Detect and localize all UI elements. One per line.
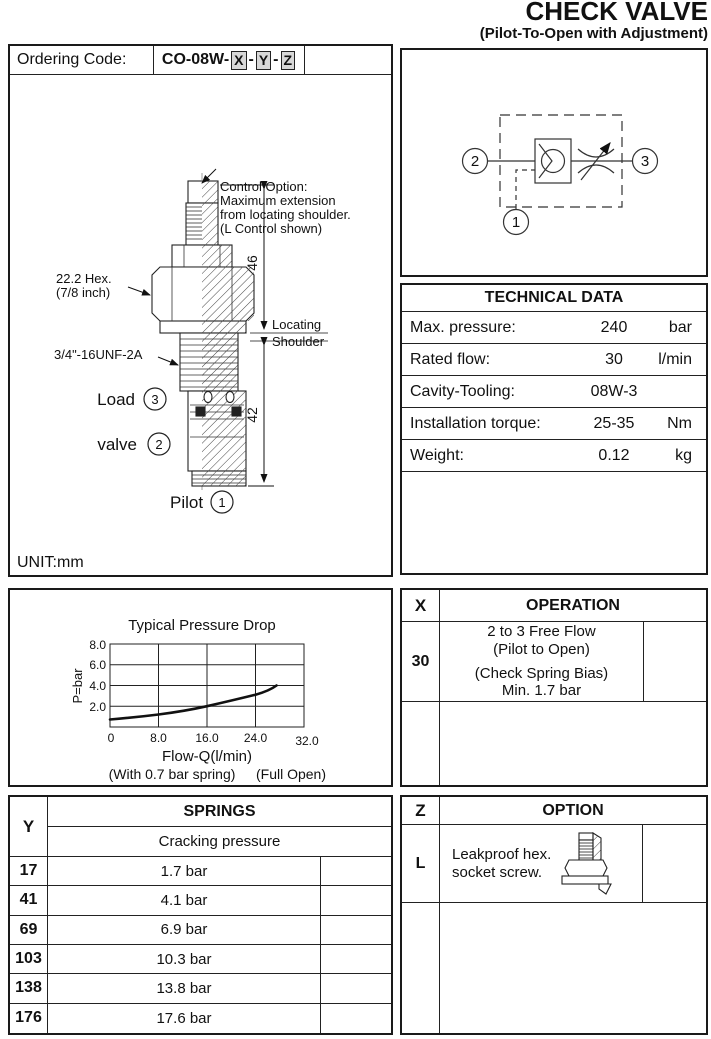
spring-value: 1.7 bar [48, 857, 321, 886]
dim-46-label: 46 [244, 255, 260, 271]
spring-value: 10.3 bar [48, 945, 321, 974]
xtick-32: 32.0 [295, 734, 319, 748]
chart-ylabel: P=bar [70, 668, 85, 704]
springs-panel: Y SPRINGS Cracking pressure 17 1.7 bar 4… [8, 795, 393, 1035]
dim-42-label: 42 [244, 407, 260, 423]
spring-value: 13.8 bar [48, 974, 321, 1003]
control-note-line1: Control Option: [220, 179, 307, 194]
leakproof-screw-icon [559, 832, 615, 896]
tech-value: 0.12 [574, 447, 654, 465]
xtick-16: 16.0 [195, 731, 219, 745]
option-code: L [402, 825, 440, 903]
tech-label: Rated flow: [402, 351, 574, 369]
spring-empty [321, 916, 391, 945]
hex-leader-arrow [128, 287, 150, 295]
operation-code: 30 [402, 622, 440, 702]
ordering-code-z: Z [281, 51, 296, 70]
spring-empty [321, 886, 391, 915]
spring-value: 17.6 bar [48, 1004, 321, 1033]
option-line1: Leakproof hex. [452, 846, 551, 864]
tech-unit: kg [654, 447, 706, 465]
ordering-code-value: CO-08W-X-Y-Z [154, 46, 305, 74]
check-ball [542, 150, 565, 173]
throttle-arc-top [578, 149, 614, 157]
operation-line1: 2 to 3 Free Flow [440, 623, 643, 641]
option-line2: socket screw. [452, 864, 551, 882]
option-title: OPTION [440, 797, 706, 825]
port-valve-number: 2 [155, 437, 162, 452]
technical-data-panel: TECHNICAL DATA Max. pressure: 240 bar Ra… [400, 283, 708, 575]
thread-leader-arrow [158, 357, 178, 365]
o-ring-left [196, 407, 205, 416]
chart-note-spring: (With 0.7 bar spring) [109, 766, 236, 782]
operation-line4: Min. 1.7 bar [440, 682, 643, 700]
unit-note: UNIT:mm [17, 554, 84, 572]
tech-label: Max. pressure: [402, 319, 574, 337]
cross-hole-right [226, 392, 234, 403]
ordering-code-y: Y [256, 51, 271, 70]
page-title: CHECK VALVE [526, 0, 709, 27]
operation-description: 2 to 3 Free Flow (Pilot to Open) (Check … [440, 622, 644, 702]
spring-empty [321, 974, 391, 1003]
port-load-number: 3 [151, 392, 158, 407]
spring-value: 4.1 bar [48, 886, 321, 915]
datasheet-page: CHECK VALVE (Pilot-To-Open with Adjustme… [0, 0, 711, 1039]
port-pilot-number: 1 [218, 495, 225, 510]
spring-code: 103 [10, 945, 48, 974]
pilot-line [516, 170, 535, 209]
pressure-drop-chart: Typical Pressure Drop 8.0 6.0 4.0 2.0 0 … [10, 590, 391, 785]
operation-panel: X OPERATION 30 2 to 3 Free Flow (Pilot t… [400, 588, 708, 787]
control-note-line4: (L Control shown) [220, 221, 322, 236]
spring-code: 17 [10, 857, 48, 886]
operation-title: OPERATION [440, 590, 706, 622]
spring-empty [321, 1004, 391, 1033]
tech-value: 30 [574, 351, 654, 369]
operation-line2: (Pilot to Open) [440, 641, 643, 659]
ytick-8: 8.0 [89, 638, 106, 652]
tech-label: Weight: [402, 447, 574, 465]
chart-xlabel: Flow-Q(l/min) [162, 748, 252, 765]
xtick-0: 0 [108, 731, 115, 745]
xtick-24: 24.0 [244, 731, 268, 745]
throttle-arc-bottom [578, 165, 614, 173]
ordering-code-prefix: CO-08W- [162, 51, 229, 69]
springs-title: SPRINGS [48, 797, 391, 827]
control-note-line2: Maximum extension [220, 193, 336, 208]
ordering-code-row: Ordering Code: CO-08W-X-Y-Z [10, 46, 391, 75]
spring-value: 6.9 bar [48, 916, 321, 945]
operation-line3: (Check Spring Bias) [440, 665, 643, 683]
ordering-sep1: - [249, 51, 254, 69]
tech-value: 08W-3 [574, 383, 654, 401]
spring-code: 41 [10, 886, 48, 915]
pressure-drop-curve [110, 686, 277, 720]
chart-note-fullopen: (Full Open) [256, 766, 326, 782]
table-row: Weight: 0.12 kg [402, 440, 706, 472]
technical-data-title: TECHNICAL DATA [402, 285, 706, 312]
tech-value: 25-35 [574, 415, 654, 433]
valve-cross-section-drawing: Control Option: Maximum extension from l… [10, 75, 391, 573]
tech-value: 240 [574, 319, 654, 337]
port-pilot-label: Pilot [170, 493, 203, 512]
page-subtitle: (Pilot-To-Open with Adjustment) [480, 25, 708, 42]
xtick-8: 8.0 [150, 731, 167, 745]
ordering-code-label: Ordering Code: [10, 46, 154, 74]
table-row: Cavity-Tooling: 08W-3 [402, 376, 706, 408]
springs-col-header: Y [10, 797, 48, 857]
ytick-4: 4.0 [89, 679, 106, 693]
pressure-drop-chart-panel: Typical Pressure Drop 8.0 6.0 4.0 2.0 0 … [8, 588, 393, 787]
option-panel: Z OPTION L Leakproof hex. socket screw. [400, 795, 708, 1035]
spring-code: 176 [10, 1004, 48, 1033]
cross-hole-left [204, 392, 212, 403]
port-load-label: Load [97, 390, 135, 409]
ordering-sep2: - [273, 51, 278, 69]
o-ring-right [232, 407, 241, 416]
operation-col-header: X [402, 590, 440, 622]
spring-empty [321, 945, 391, 974]
spring-code: 69 [10, 916, 48, 945]
tech-unit: Nm [654, 415, 706, 433]
tech-label: Installation torque: [402, 415, 574, 433]
ytick-6: 6.0 [89, 658, 106, 672]
drawing-panel: Ordering Code: CO-08W-X-Y-Z [8, 44, 393, 577]
option-col-header: Z [402, 797, 440, 825]
schematic-panel: 2 3 1 [400, 48, 708, 277]
locating-label-line2: Shoulder [272, 334, 325, 349]
tech-unit: l/min [654, 351, 706, 369]
ordering-empty-cell [305, 46, 391, 74]
table-row: Rated flow: 30 l/min [402, 344, 706, 376]
spring-code: 138 [10, 974, 48, 1003]
option-footer-empty [440, 903, 706, 1033]
operation-footer-empty [440, 702, 706, 785]
hex-label-line1: 22.2 Hex. [56, 271, 112, 286]
springs-subtitle: Cracking pressure [48, 827, 391, 857]
table-row: Installation torque: 25-35 Nm [402, 408, 706, 440]
port-valve-label: valve [97, 435, 137, 454]
ytick-2: 2.0 [89, 700, 106, 714]
schematic-port-1-label: 1 [512, 214, 520, 231]
operation-empty-cell [644, 622, 706, 702]
schematic-port-2-label: 2 [471, 153, 479, 170]
hydraulic-symbol: 2 3 1 [402, 50, 706, 275]
option-description: Leakproof hex. socket screw. [440, 825, 643, 903]
tech-unit: bar [654, 319, 706, 337]
option-footer-col [402, 903, 440, 1033]
table-row: Max. pressure: 240 bar [402, 312, 706, 344]
control-note-line3: from locating shoulder. [220, 207, 351, 222]
option-empty-cell [643, 825, 706, 903]
locating-label-line1: Locating [272, 317, 321, 332]
hex-label-line2: (7/8 inch) [56, 285, 110, 300]
tech-label: Cavity-Tooling: [402, 383, 574, 401]
operation-footer-col [402, 702, 440, 785]
ordering-code-x: X [231, 51, 246, 70]
schematic-port-3-label: 3 [641, 153, 649, 170]
spring-empty [321, 857, 391, 886]
thread-label: 3/4"-16UNF-2A [54, 347, 143, 362]
chart-title: Typical Pressure Drop [128, 617, 276, 634]
